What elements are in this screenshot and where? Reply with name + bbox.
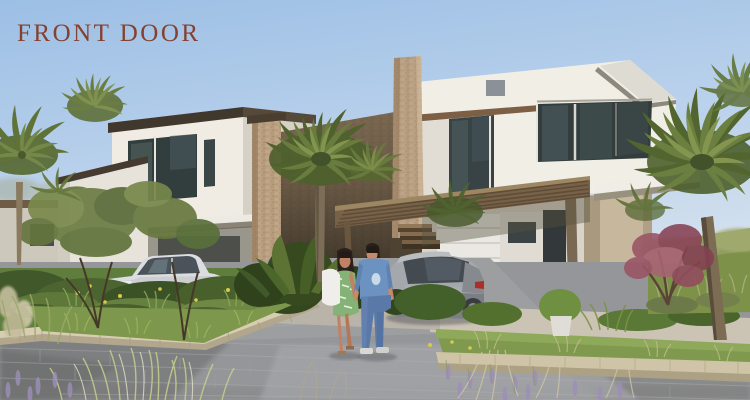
svg-text:FRONT DOOR: FRONT DOOR bbox=[17, 20, 201, 47]
